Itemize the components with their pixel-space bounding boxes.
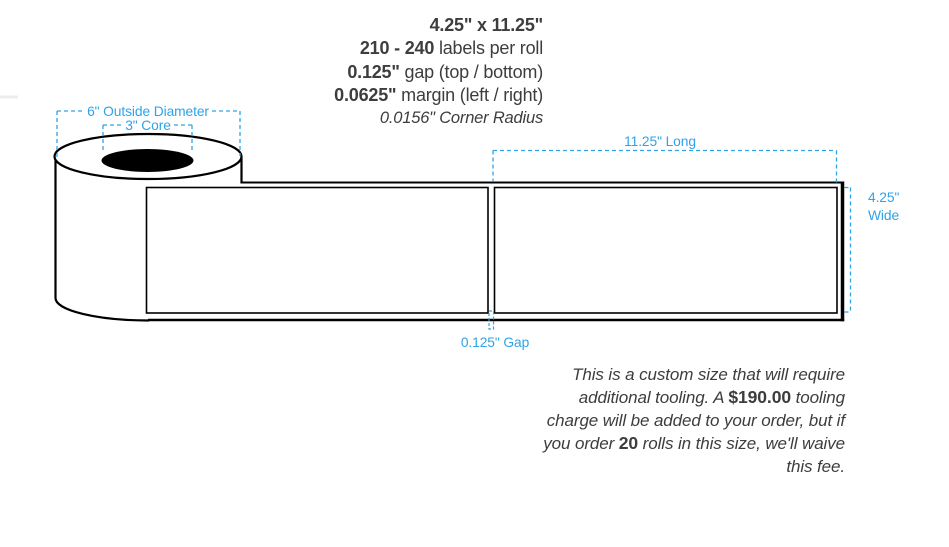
label-rect-2 (495, 188, 838, 314)
width-label-line2: Wide (868, 208, 899, 223)
spec-gap-text: gap (top / bottom) (400, 62, 543, 82)
note-line: charge will be added to your order, but … (485, 409, 845, 432)
note-line: you order 20 rolls in this size, we'll w… (485, 432, 845, 455)
note-line: this fee. (485, 455, 845, 478)
width-dimension (845, 188, 851, 313)
custom-size-note: This is a custom size that will require … (485, 363, 845, 478)
spec-size-value: 4.25" x 11.25" (430, 15, 543, 35)
note-text: This is a custom size that will require (572, 365, 845, 384)
spec-size: 4.25" x 11.25" (213, 14, 543, 37)
spec-margin-text: margin (left / right) (396, 85, 543, 105)
note-text: tooling (791, 388, 845, 407)
roll-core (102, 149, 194, 172)
spec-gap-value: 0.125" (347, 62, 399, 82)
roll-body-outline (56, 157, 150, 321)
note-line: This is a custom size that will require (485, 363, 845, 386)
spec-gap: 0.125" gap (top / bottom) (213, 61, 543, 84)
note-text: additional tooling. A (579, 388, 729, 407)
length-dimension (493, 151, 837, 184)
note-line: additional tooling. A $190.00 tooling (485, 386, 845, 409)
spec-corner-radius: 0.0156" Corner Radius (213, 107, 543, 130)
note-text: rolls in this size, we'll waive (638, 434, 845, 453)
note-tooling-price: $190.00 (728, 387, 791, 407)
spec-count-text: labels per roll (434, 38, 543, 58)
spec-corner-radius-text: 0.0156" Corner Radius (380, 109, 543, 127)
core-label: 3" Core (125, 118, 171, 133)
note-waive-quantity: 20 (619, 433, 638, 453)
label-roll-spec-page: 6" Outside Diameter 3" Core 11.25" Long … (0, 0, 949, 547)
width-label-line1: 4.25" (868, 190, 899, 205)
note-text: you order (543, 434, 619, 453)
page-edge-artifact (0, 96, 18, 99)
spec-count-value: 210 - 240 (360, 38, 434, 58)
gap-label: 0.125" Gap (461, 335, 530, 350)
label-rect-1 (147, 188, 489, 314)
outside-diameter-label: 6" Outside Diameter (87, 104, 209, 119)
note-text: charge will be added to your order, but … (547, 411, 845, 430)
spec-margin-value: 0.0625" (334, 85, 396, 105)
length-label: 11.25" Long (624, 134, 696, 149)
note-text: this fee. (786, 457, 845, 476)
spec-margin: 0.0625" margin (left / right) (213, 84, 543, 107)
spec-labels-per-roll: 210 - 240 labels per roll (213, 37, 543, 60)
spec-summary: 4.25" x 11.25" 210 - 240 labels per roll… (213, 14, 543, 130)
